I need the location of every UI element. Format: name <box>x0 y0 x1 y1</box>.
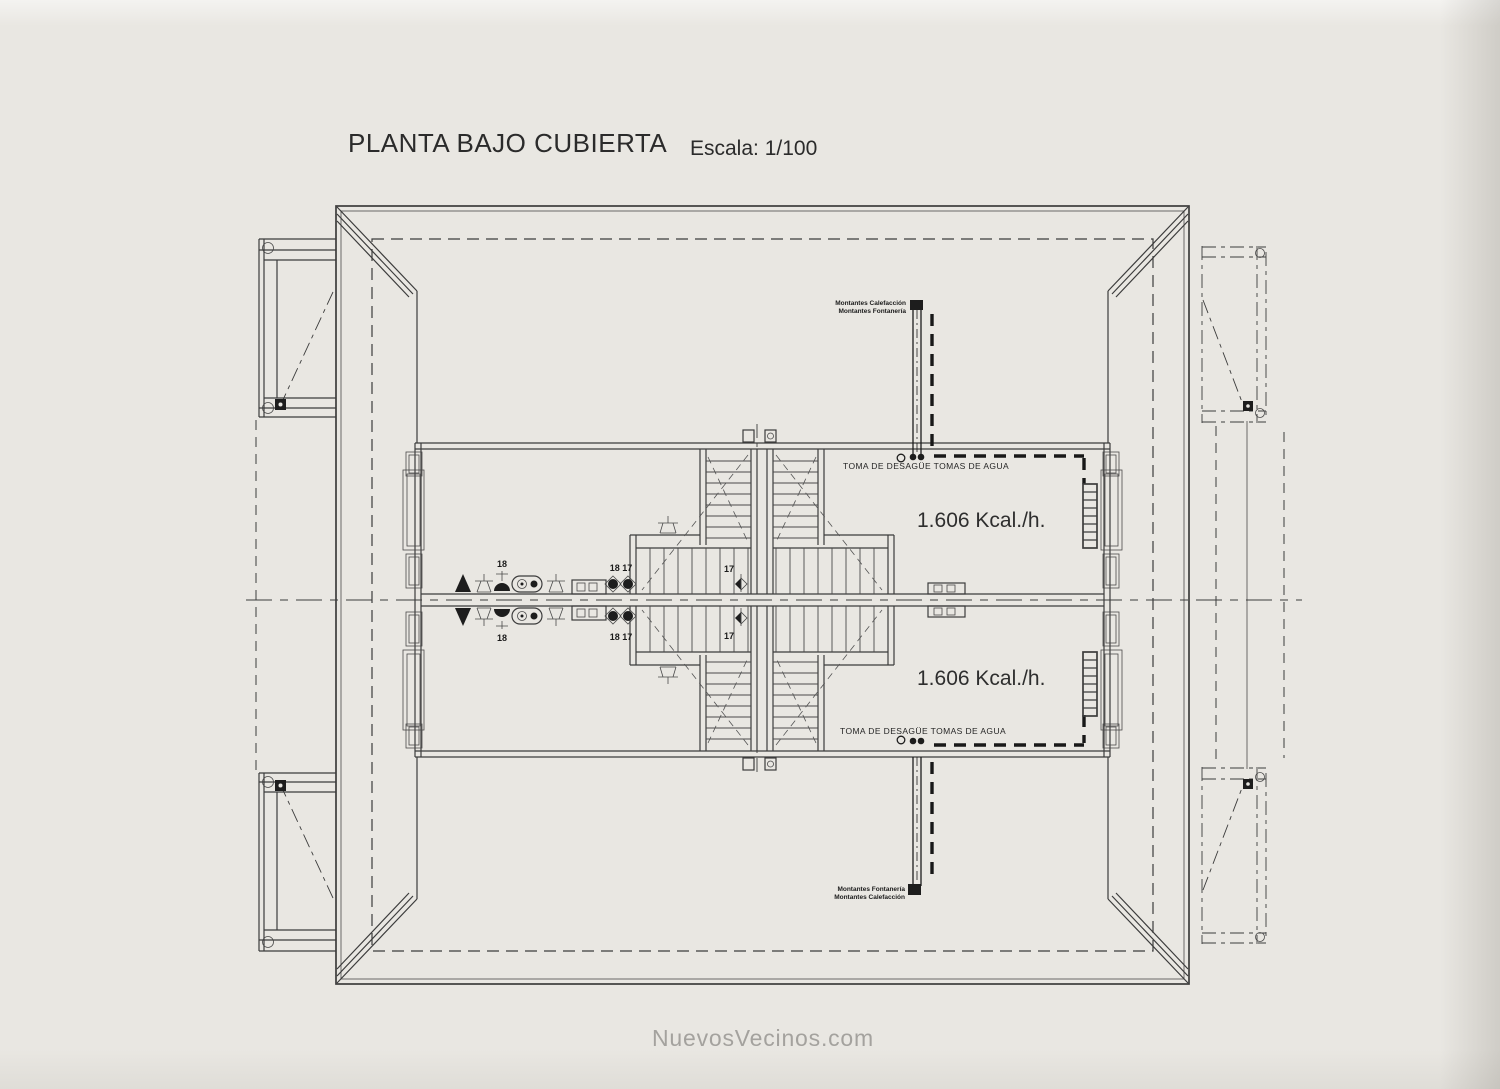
party-wall-centerline <box>246 424 1302 776</box>
water-point <box>918 738 925 745</box>
fixture-number: 18 17 <box>610 563 633 573</box>
stair-top-left <box>630 449 757 594</box>
bath-fixtures-bottom: 18 18 17 17 <box>455 606 747 643</box>
bath-fixtures-top: 18 18 17 17 <box>455 559 747 594</box>
drain-points: 18 17 <box>605 608 636 642</box>
risers-bottom: Montantes Fontanería Montantes Calefacci… <box>834 715 1084 901</box>
bidet-icon: 18 <box>494 559 510 591</box>
heat-load-bottom: 1.606 Kcal./h. <box>917 667 1045 690</box>
drain-point <box>897 736 905 744</box>
fixture-number: 17 <box>724 631 734 641</box>
riser-label: Montantes Fontanería <box>838 308 906 315</box>
toma-label: TOMA DE DESAGÜE TOMAS DE AGUA <box>843 461 1009 471</box>
lavatory-icon <box>547 574 565 592</box>
floor-plan-drawing: PLANTA BAJO CUBIERTA Escala: 1/100 <box>0 0 1500 1089</box>
water-point <box>910 738 917 745</box>
water-point <box>910 454 917 461</box>
roof-outline <box>336 206 1189 984</box>
duct-box-icon <box>572 606 606 620</box>
water-point <box>918 454 925 461</box>
triangle-symbol <box>455 574 471 592</box>
radiator-bottom <box>1083 652 1097 716</box>
triangle-symbol <box>455 608 471 626</box>
fixture-number: 18 17 <box>610 632 633 642</box>
porch-right-middle <box>1216 421 1284 769</box>
porch-right-top <box>1202 246 1266 423</box>
riser-label: Montantes Calefacción <box>834 894 905 901</box>
valve-icon: 17 <box>724 608 747 641</box>
washbasin-icon <box>512 576 542 592</box>
eaves-dashed-line <box>372 239 1153 951</box>
watermark: NuevosVecinos.com <box>652 1025 874 1051</box>
toma-label: TOMA DE DESAGÜE TOMAS DE AGUA <box>840 726 1006 736</box>
duct-box-icon <box>572 580 606 594</box>
lavatory-icon <box>547 608 565 626</box>
lavatory-icon <box>475 574 493 592</box>
stair-bottom-left <box>630 606 757 751</box>
heat-load-top: 1.606 Kcal./h. <box>917 509 1045 532</box>
page-title: PLANTA BAJO CUBIERTA <box>348 128 667 158</box>
fixture-number: 17 <box>724 564 734 574</box>
bidet-icon: 18 <box>494 609 510 643</box>
valve-icon: 17 <box>724 564 747 592</box>
riser-label: Montantes Calefacción <box>835 300 906 307</box>
drain-points: 18 17 <box>605 563 636 592</box>
washbasin-icon <box>512 608 542 624</box>
lavatory-icon <box>475 608 493 626</box>
riser-connector <box>910 300 923 310</box>
porch-left-bottom <box>259 773 336 951</box>
risers-top: Montantes Calefacción Montantes Fontaner… <box>835 300 1084 484</box>
porch-right-bottom <box>1202 767 1266 944</box>
riser-connector <box>908 884 921 895</box>
riser-label: Montantes Fontanería <box>837 886 905 893</box>
fixture-number: 18 <box>497 633 507 643</box>
fixture-number: 18 <box>497 559 507 569</box>
scale-label: Escala: 1/100 <box>690 137 817 160</box>
porch-left-top <box>259 239 336 417</box>
radiator-top <box>1083 484 1097 548</box>
hip-lines <box>337 207 1188 983</box>
